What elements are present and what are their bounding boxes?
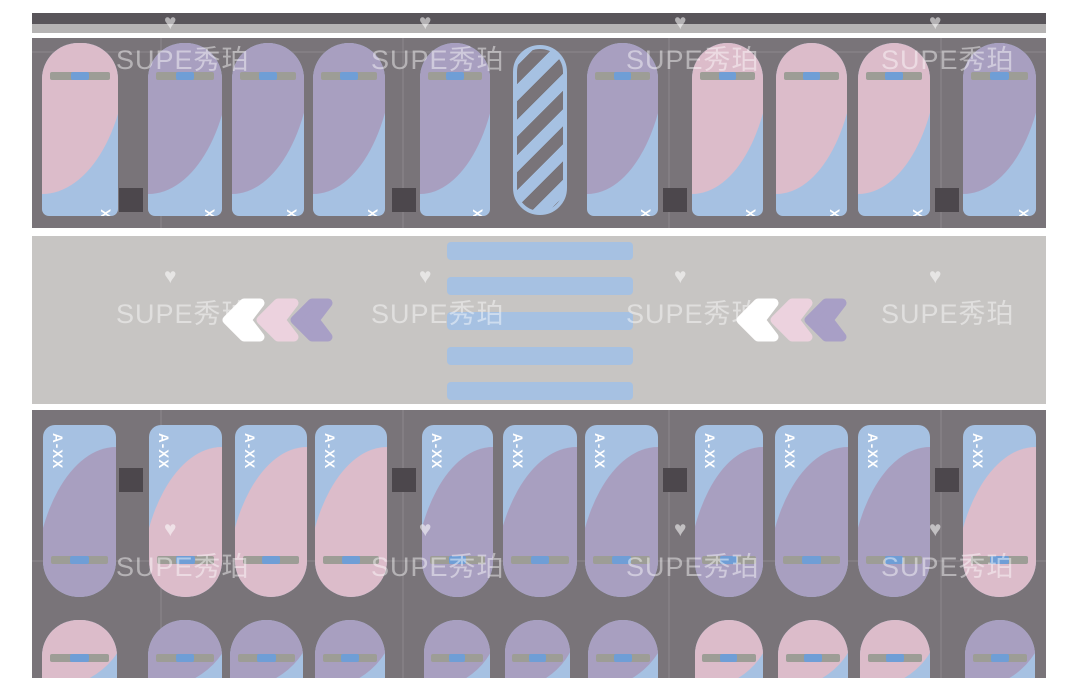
stall-sensor-bar-segment (990, 556, 1008, 564)
stall-sensor-bar (511, 556, 569, 564)
stall-sensor-bar (702, 654, 755, 662)
stall-sensor-bar-segment (340, 72, 358, 80)
stall-sensor-bar-segment (262, 556, 280, 564)
crosswalk-stripe (447, 382, 633, 400)
stall-fill (585, 447, 658, 597)
parking-stall (695, 620, 763, 678)
stall-fill (315, 620, 385, 678)
stall-fill (313, 43, 385, 194)
structural-pillar (935, 468, 959, 492)
stall-number-label: A-XX (242, 433, 257, 469)
stall-number-label: A-XX (470, 208, 485, 216)
structural-pillar (392, 468, 416, 492)
stall-number-label: A-XX (50, 433, 65, 469)
stall-fill (965, 620, 1035, 678)
stall-sensor-bar (868, 654, 923, 662)
parking-stall (230, 620, 303, 678)
parking-stall: A-XX (148, 43, 222, 216)
stall-sensor-bar-segment (614, 72, 632, 80)
stall-sensor-bar-segment (176, 556, 194, 564)
stall-sensor-bar-segment (257, 654, 275, 662)
stall-number-label: A-XX (782, 433, 797, 469)
stall-fill (692, 43, 763, 194)
parking-stall (42, 620, 117, 678)
parking-stall: A-XX (420, 43, 490, 216)
stall-sensor-bar (430, 556, 485, 564)
parking-stall (778, 620, 848, 678)
structural-pillar (935, 188, 959, 212)
stall-sensor-bar (323, 654, 378, 662)
parking-stall (148, 620, 222, 678)
stall-number-label: A-XX (284, 208, 299, 216)
parking-stall: A-XX (775, 425, 848, 597)
stall-fill (230, 620, 303, 678)
left-chevron-arrow-icon (801, 298, 847, 342)
parking-stall: A-XX (585, 425, 658, 597)
stall-sensor-bar-segment (449, 654, 465, 662)
stall-fill (776, 43, 847, 194)
stall-fill (148, 620, 222, 678)
stall-fill (858, 447, 930, 597)
parking-stall: A-XX (503, 425, 577, 597)
stall-sensor-bar (866, 556, 922, 564)
stall-sensor-bar (702, 556, 755, 564)
stall-number-label: A-XX (429, 433, 444, 469)
stall-sensor-bar-segment (804, 654, 821, 662)
parking-stall (965, 620, 1035, 678)
structural-pillar (663, 468, 687, 492)
stall-sensor-bar-segment (802, 556, 820, 564)
stall-sensor-bar (700, 72, 755, 80)
stall-sensor-bar (50, 654, 109, 662)
stall-fill (43, 447, 116, 597)
stall-sensor-bar-segment (259, 72, 277, 80)
stall-fill (695, 447, 763, 597)
stall-fill (420, 43, 490, 194)
stall-number-label: A-XX (98, 208, 113, 216)
stall-fill (588, 620, 658, 678)
stall-sensor-bar-segment (990, 72, 1008, 80)
stall-fill (42, 620, 117, 678)
stall-sensor-bar (596, 654, 651, 662)
grid-line (668, 410, 670, 678)
stall-sensor-bar (321, 72, 377, 80)
top-wall-outer (32, 13, 1046, 24)
stall-sensor-bar (786, 654, 841, 662)
stall-sensor-bar-segment (803, 72, 821, 80)
stall-sensor-bar (971, 72, 1028, 80)
stall-fill (42, 43, 118, 194)
stall-number-label: A-XX (865, 433, 880, 469)
driveway (32, 236, 1046, 404)
stall-sensor-bar (973, 654, 1028, 662)
left-chevron-arrow-icon (733, 298, 779, 342)
stall-number-label: A-XX (910, 208, 925, 216)
structural-pillar (663, 188, 687, 212)
parking-stall: A-XX (963, 43, 1036, 216)
crosswalk-stripe (447, 277, 633, 295)
stall-fill (963, 43, 1036, 194)
parking-stall: A-XX (422, 425, 493, 597)
stall-sensor-bar-segment (719, 72, 737, 80)
parking-stall: A-XX (692, 43, 763, 216)
stall-fill (505, 620, 570, 678)
parking-stall: A-XX (695, 425, 763, 597)
parking-stall: A-XX (315, 425, 387, 597)
left-chevron-arrow-icon (287, 298, 333, 342)
parking-stall (860, 620, 930, 678)
stall-sensor-bar (784, 72, 839, 80)
stall-fill (315, 447, 387, 597)
parking-stall: A-XX (232, 43, 304, 216)
stall-sensor-bar (595, 72, 650, 80)
stall-fill (235, 447, 307, 597)
stall-number-label: A-XX (970, 433, 985, 469)
stall-sensor-bar (971, 556, 1028, 564)
stall-sensor-bar (240, 72, 296, 80)
crosswalk-stripe (447, 347, 633, 365)
parking-stall: A-XX (963, 425, 1036, 597)
stall-sensor-bar (157, 556, 214, 564)
stall-sensor-bar-segment (885, 72, 903, 80)
parking-stall: A-XX (235, 425, 307, 597)
stall-sensor-bar-segment (531, 556, 549, 564)
stall-sensor-bar-segment (449, 556, 467, 564)
stall-number-label: A-XX (202, 208, 217, 216)
direction-arrows (219, 298, 335, 342)
stall-sensor-bar (156, 654, 214, 662)
stall-fill (775, 447, 848, 597)
stall-sensor-bar (156, 72, 214, 80)
stall-sensor-bar-segment (720, 654, 737, 662)
stall-sensor-bar-segment (885, 556, 903, 564)
stall-number-label: A-XX (743, 208, 758, 216)
structural-pillar (119, 188, 143, 212)
parking-stall (588, 620, 658, 678)
stall-number-label: A-XX (638, 208, 653, 216)
parking-stall: A-XX (776, 43, 847, 216)
stall-number-label: A-XX (365, 208, 380, 216)
stall-sensor-bar-segment (70, 556, 88, 564)
stall-sensor-bar (238, 654, 295, 662)
top-wall-inner (32, 24, 1046, 33)
grid-line (940, 410, 942, 678)
stall-fill (422, 447, 493, 597)
stall-sensor-bar-segment (176, 654, 194, 662)
stall-sensor-bar-segment (529, 654, 545, 662)
stall-fill (587, 43, 658, 194)
stall-sensor-bar-segment (446, 72, 463, 80)
parking-stall: A-XX (313, 43, 385, 216)
stall-number-label: A-XX (156, 433, 171, 469)
stall-sensor-bar (323, 556, 379, 564)
stall-sensor-bar-segment (342, 556, 360, 564)
stall-sensor-bar-segment (614, 654, 631, 662)
crosswalk-stripe (447, 242, 633, 260)
parking-band-bottom: A-XXA-XXA-XXA-XXA-XXA-XXA-XXA-XXA-XXA-XX… (32, 410, 1046, 678)
parking-stall (424, 620, 490, 678)
stall-fill (695, 620, 763, 678)
parking-stall: A-XX (149, 425, 222, 597)
stall-sensor-bar (783, 556, 840, 564)
grid-line (402, 410, 404, 678)
stall-sensor-bar-segment (886, 654, 903, 662)
stall-number-label: A-XX (510, 433, 525, 469)
stall-sensor-bar-segment (612, 556, 630, 564)
stall-fill (778, 620, 848, 678)
parking-stall: A-XX (858, 43, 930, 216)
parking-stall: A-XX (43, 425, 116, 597)
left-chevron-arrow-icon (219, 298, 265, 342)
stall-sensor-bar-segment (341, 654, 358, 662)
stall-sensor-bar (593, 556, 650, 564)
stall-sensor-bar (866, 72, 922, 80)
stall-number-label: A-XX (1016, 208, 1031, 216)
structural-pillar (392, 188, 416, 212)
stall-sensor-bar (512, 654, 563, 662)
stall-fill (232, 43, 304, 194)
stall-fill (148, 43, 222, 194)
stall-sensor-bar-segment (720, 556, 737, 564)
structural-pillar (119, 468, 143, 492)
stall-number-label: A-XX (702, 433, 717, 469)
stall-fill (149, 447, 222, 597)
stall-sensor-bar (51, 556, 108, 564)
parking-stall: A-XX (587, 43, 658, 216)
crosswalk-stripe (447, 312, 633, 330)
stall-fill (963, 447, 1036, 597)
direction-arrows (733, 298, 849, 342)
stall-number-label: A-XX (827, 208, 842, 216)
parking-band-top: A-XXA-XXA-XXA-XXA-XXA-XXA-XXA-XXA-XXA-XX (32, 38, 1046, 228)
stall-sensor-bar-segment (176, 72, 194, 80)
stall-fill (858, 43, 930, 194)
no-parking-hatched-stall (513, 45, 567, 215)
parking-stall (315, 620, 385, 678)
stall-sensor-bar-segment (991, 654, 1008, 662)
stall-sensor-bar (428, 72, 483, 80)
stall-sensor-bar-segment (70, 654, 89, 662)
stall-fill (503, 447, 577, 597)
stall-number-label: A-XX (592, 433, 607, 469)
parking-stall (505, 620, 570, 678)
floorplan-canvas: A-XXA-XXA-XXA-XXA-XXA-XXA-XXA-XXA-XXA-XX… (0, 0, 1080, 695)
stall-sensor-bar-segment (71, 72, 90, 80)
stall-fill (424, 620, 490, 678)
parking-stall: A-XX (858, 425, 930, 597)
parking-stall: A-XX (42, 43, 118, 216)
stall-fill (860, 620, 930, 678)
stall-sensor-bar (431, 654, 482, 662)
stall-sensor-bar (243, 556, 299, 564)
stall-sensor-bar (50, 72, 109, 80)
stall-number-label: A-XX (322, 433, 337, 469)
